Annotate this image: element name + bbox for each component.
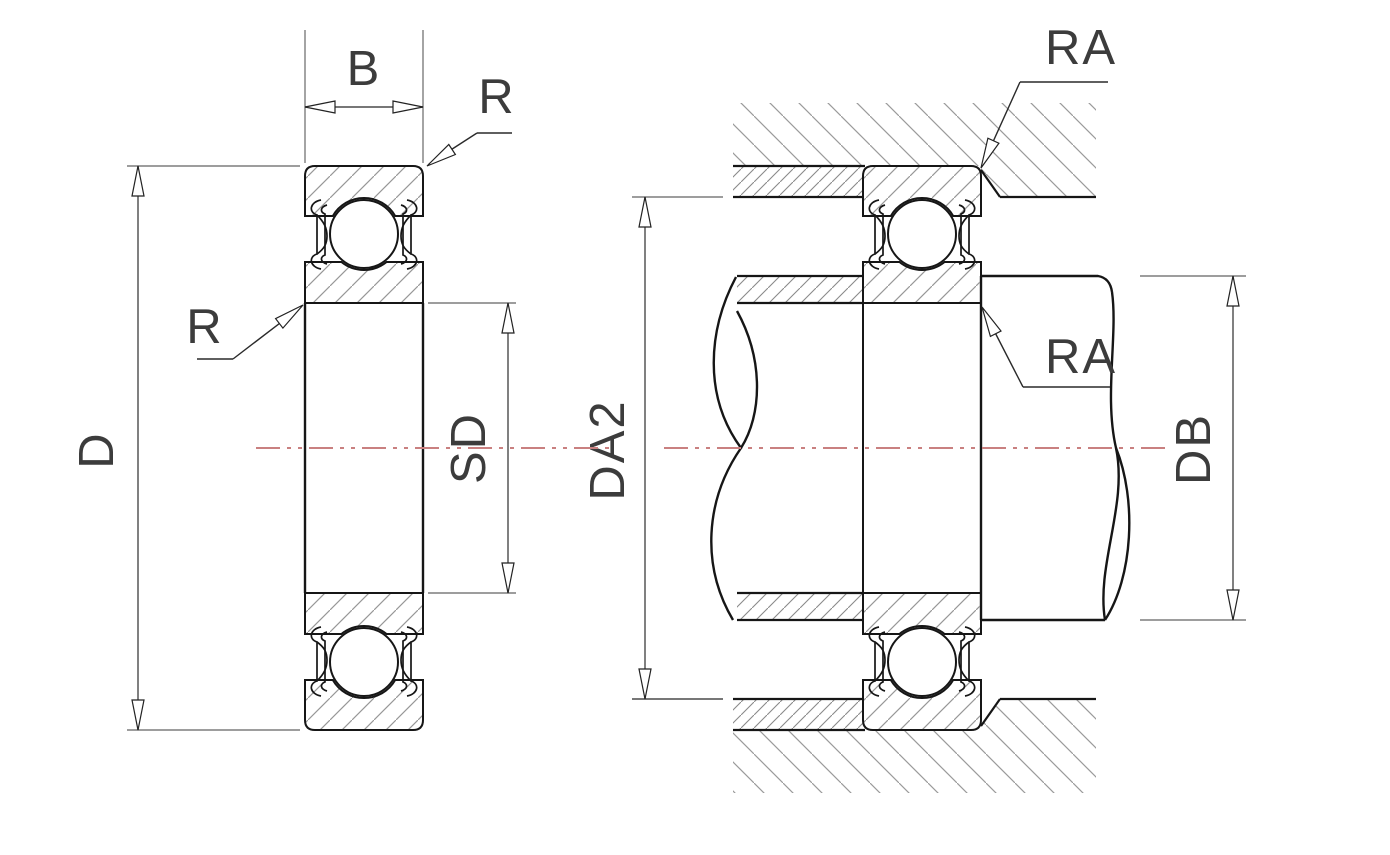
dimension-da2: DA2 [581, 197, 723, 699]
bearing-section-left-bottom [305, 593, 423, 730]
leader-r-outer: R [427, 70, 516, 166]
d-label: D [70, 431, 124, 468]
da2-label: DA2 [581, 399, 635, 500]
r-bore-label: R [186, 300, 223, 354]
bearing-drawing-canvas: DA2 DB RA RA [0, 0, 1390, 855]
engineering-drawing-page: DA2 DB RA RA [0, 0, 1390, 855]
bearing-section-right-top [863, 166, 981, 303]
bearing-section-right-bottom [863, 593, 981, 730]
ra-housing-label: RA [1045, 21, 1117, 75]
housing-top-band [733, 166, 863, 197]
db-label: DB [1167, 413, 1221, 485]
dimension-b: B [305, 30, 423, 163]
leader-ra-shaft: RA [982, 307, 1117, 387]
r-outer-label: R [478, 70, 515, 124]
housing-bottom-band [733, 699, 863, 730]
bearing-section-left-top [305, 166, 423, 303]
ra-shaft-label: RA [1045, 330, 1117, 384]
shaft-shoulder-top [737, 276, 863, 303]
b-label: B [347, 42, 382, 96]
bearing-view: B D SD R [70, 30, 614, 730]
leader-r-bore: R [186, 300, 303, 359]
mounted-view: DA2 DB RA RA [581, 21, 1246, 793]
sd-label: SD [442, 412, 496, 484]
shaft-shoulder-bottom [737, 593, 863, 620]
